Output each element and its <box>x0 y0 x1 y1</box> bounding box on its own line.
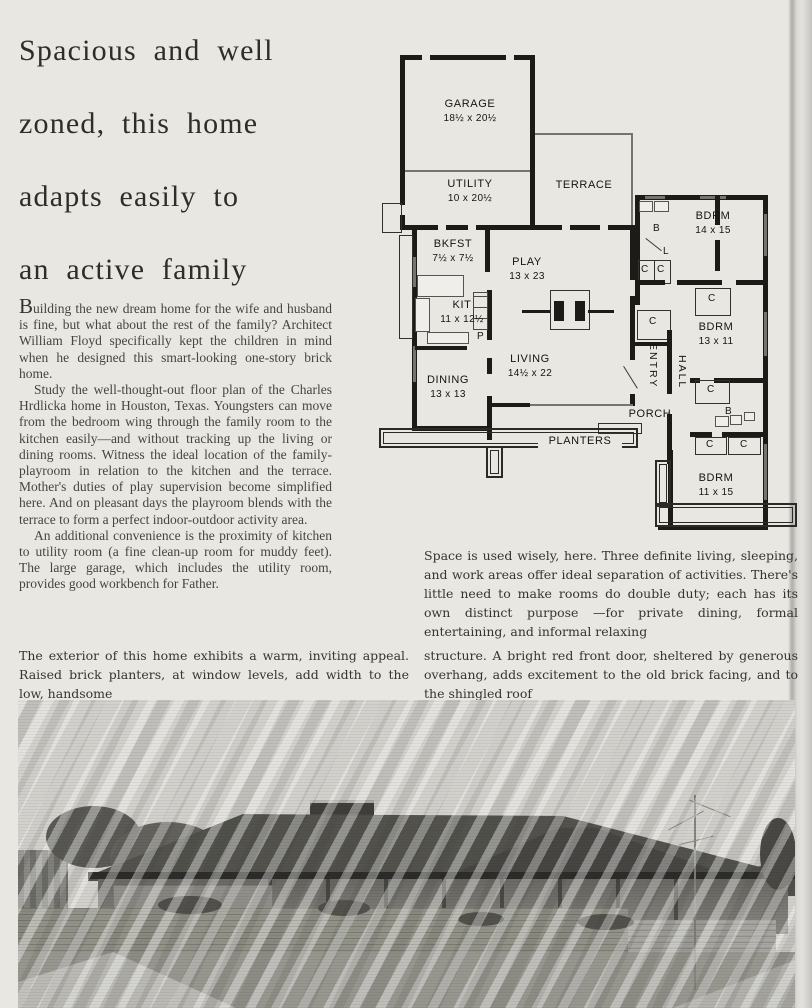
bath-fixture <box>744 412 755 421</box>
planter <box>655 460 671 507</box>
wall-segment <box>715 240 720 271</box>
wall-segment <box>490 225 518 230</box>
room-divider <box>405 170 530 172</box>
room-label-bkfst: BKFST 7½ x 7½ <box>418 238 488 265</box>
kitchen-counter <box>417 275 464 297</box>
room-label-garage: GARAGE 18½ x 20½ <box>422 98 518 125</box>
wall-segment <box>400 225 438 230</box>
wall-segment <box>677 280 722 285</box>
closet-label: C <box>657 264 665 275</box>
wall-segment <box>400 55 405 205</box>
pantry-label: P <box>477 331 484 342</box>
wall-segment <box>588 310 614 313</box>
wall-segment <box>514 55 530 60</box>
room-label-play: PLAY 13 x 23 <box>495 256 559 283</box>
wall-segment <box>446 225 468 230</box>
closet-label: C <box>649 316 657 327</box>
window-line <box>764 214 767 256</box>
room-label-living: LIVING 14½ x 22 <box>495 353 565 380</box>
closet-label: C <box>708 293 716 304</box>
wall-segment <box>635 280 665 285</box>
room-label-terrace: TERRACE <box>548 179 620 193</box>
exterior-caption-right: structure. A bright red front door, shel… <box>424 646 798 703</box>
exterior-photo <box>18 700 795 1008</box>
fireplace-mass <box>554 301 564 321</box>
exterior-caption-left: The exterior of this home exhibits a war… <box>19 646 409 703</box>
room-label-bdrm2: BDRM 13 x 11 <box>686 321 746 348</box>
room-label-entry: ENTRY <box>647 343 659 388</box>
fireplace-mass <box>575 301 585 321</box>
window-line <box>645 196 665 199</box>
headline-line: Spacious and well <box>19 14 304 87</box>
article-body: Building the new dream home for the wife… <box>19 300 332 593</box>
headline-line: adapts easily to <box>19 160 304 233</box>
terrace-edge <box>535 133 633 135</box>
stoop <box>382 203 402 233</box>
closet-label: C <box>740 439 748 450</box>
bath-fixture <box>654 201 669 212</box>
wall-segment <box>526 225 562 230</box>
wall-segment <box>415 346 467 350</box>
window-line <box>700 196 726 199</box>
bath-fixture <box>639 201 653 212</box>
kitchen-appliance <box>415 298 430 332</box>
paragraph: Building the new dream home for the wife… <box>19 300 332 382</box>
wall-segment <box>430 55 506 60</box>
wall-segment <box>570 225 600 230</box>
paragraph: Study the well-thought-out floor plan of… <box>19 382 332 528</box>
magazine-page: Spacious and well zoned, this home adapt… <box>0 0 812 1008</box>
room-label-dining: DINING 13 x 13 <box>415 374 481 401</box>
bath-label: B <box>653 223 660 234</box>
entry-door-swing <box>623 366 638 389</box>
wall-segment <box>736 280 768 285</box>
wall-segment <box>492 403 530 407</box>
room-label-porch: PORCH <box>622 408 678 422</box>
room-label-utility: UTILITY 10 x 20½ <box>422 178 518 205</box>
grain-overlay <box>18 700 795 1008</box>
planter-box <box>399 235 413 339</box>
headline-line: zoned, this home <box>19 87 304 160</box>
wall-segment <box>630 296 635 360</box>
headline: Spacious and well zoned, this home adapt… <box>19 14 304 306</box>
room-label-kit: KIT 11 x 12½ <box>430 299 494 326</box>
plan-caption: Space is used wisely, here. Three defini… <box>424 546 798 641</box>
planter <box>655 503 797 527</box>
bath-fixture <box>715 416 729 427</box>
wall-segment <box>487 358 492 374</box>
wall-segment <box>530 55 535 230</box>
window-line <box>413 257 416 287</box>
room-label-hall: HALL <box>676 355 688 389</box>
planter <box>486 446 503 478</box>
closet-label: C <box>707 384 715 395</box>
headline-line: an active family <box>19 233 304 306</box>
window-line <box>764 444 767 500</box>
closet-label: C <box>641 264 649 275</box>
floor-plan: GARAGE 18½ x 20½ UTILITY 10 x 20½ TERRAC… <box>370 14 812 542</box>
terrace-edge <box>631 133 633 230</box>
closet-label: C <box>706 439 714 450</box>
planters-label: PLANTERS <box>538 435 622 449</box>
bath-fixture <box>730 415 742 425</box>
room-label-bdrm1: BDRM 14 x 15 <box>683 210 743 237</box>
wall-segment <box>667 330 672 394</box>
window-line <box>530 404 633 406</box>
linen-label: L <box>663 246 669 257</box>
window-line <box>764 312 767 356</box>
door-swing <box>645 238 661 251</box>
room-label-bdrm3: BDRM 11 x 15 <box>686 472 746 499</box>
kitchen-counter <box>427 332 469 344</box>
paragraph: An additional convenience is the proximi… <box>19 528 332 593</box>
wall-segment <box>522 310 550 313</box>
